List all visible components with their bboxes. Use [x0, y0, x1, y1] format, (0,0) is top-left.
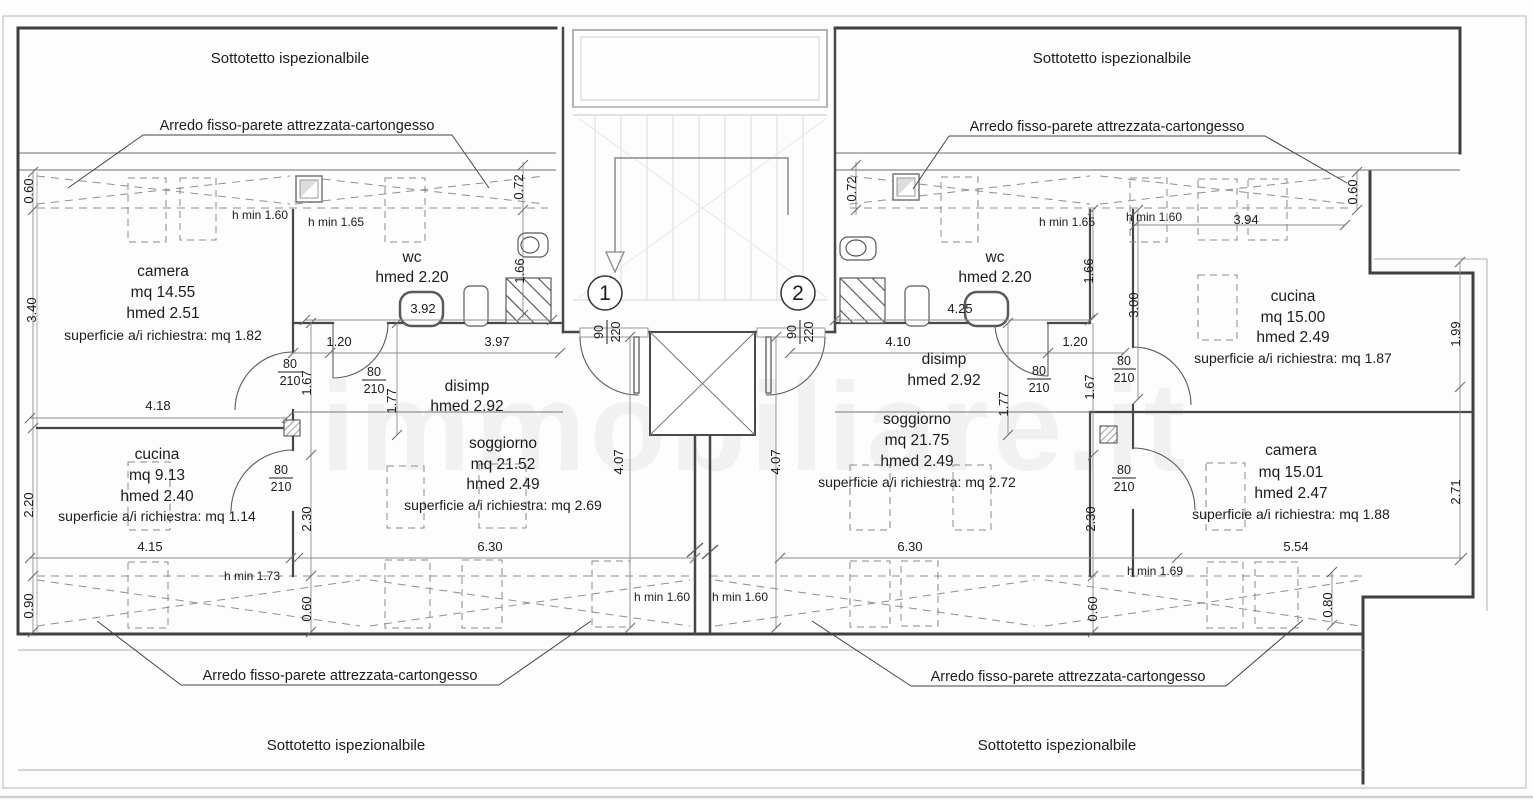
wardrobe-rect	[128, 178, 166, 242]
dim-label: 4.07	[611, 449, 626, 474]
arredo-label-bottom-left: Arredo fisso-parete attrezzata-cartonges…	[203, 668, 478, 684]
bathroom-fixtures	[400, 233, 1008, 326]
room-label-cucina-1: mq 9.13	[129, 467, 185, 484]
dim-label: h min 1.60	[1126, 210, 1182, 224]
dim-label: 4.18	[145, 398, 170, 413]
dim-label: 0.80	[1320, 592, 1335, 617]
door-size-label: 80210	[278, 357, 302, 388]
door-size-top: 90	[592, 325, 606, 339]
room-label-cucina-1: superficie a/i richiestra: mq 1.14	[58, 508, 256, 524]
floor-plan-page: immobiliare.it	[0, 0, 1533, 801]
dim-label: h min 1.65	[1039, 215, 1095, 229]
unit-1-badge: 1	[588, 276, 622, 310]
wardrobe-rect	[180, 178, 216, 240]
dim-label: 1.99	[1448, 321, 1463, 346]
dim-label: 1.20	[326, 334, 351, 349]
beam-lines	[18, 107, 1460, 170]
room-label-wc-1: wc	[402, 249, 422, 266]
dim-label: 0.60	[299, 596, 314, 621]
room-label-wc-1: hmed 2.20	[375, 269, 449, 286]
room-label-camera-2: hmed 2.47	[1254, 485, 1327, 502]
dim-label: 0.72	[844, 176, 859, 201]
dim-label: 1.77	[384, 388, 399, 413]
dim-label: h min 1.60	[634, 590, 690, 604]
door-size-bottom: 210	[364, 382, 385, 396]
staircase	[573, 30, 827, 300]
room-label-camera-1: hmed 2.51	[126, 305, 199, 322]
room-label-wc-2: wc	[985, 249, 1005, 266]
room-label-soggiorno-2: mq 21.75	[885, 432, 950, 449]
door-size-bottom: 210	[1114, 480, 1135, 494]
shower-icon	[840, 278, 885, 323]
room-label-cucina-1: hmed 2.40	[120, 488, 194, 505]
toilet-bowl-icon	[521, 237, 539, 253]
wardrobe-rect	[1198, 275, 1237, 340]
dim-label: 4.25	[947, 301, 972, 316]
shower-icon	[506, 278, 551, 323]
unit-2-number: 2	[792, 282, 804, 305]
wardrobe-rect	[1198, 179, 1237, 240]
room-label-camera-1: superficie a/i richiestra: mq 1.82	[64, 327, 262, 343]
dim-label: 3.00	[1126, 292, 1141, 317]
wardrobe-rect	[850, 561, 890, 627]
unit-2-badge: 2	[781, 276, 815, 310]
dim-label: 2.30	[1083, 506, 1098, 531]
unit-1-number: 1	[599, 282, 611, 305]
room-label-disimp-1: disimp	[445, 378, 490, 395]
wardrobe-rect	[385, 178, 425, 242]
sottotetto-label-bottom-left: Sottotetto ispezionalbile	[267, 737, 425, 754]
dim-label: 5.54	[1283, 539, 1308, 554]
door-size-label: 90220	[785, 320, 816, 344]
room-label-cucina-2: superficie a/i richiestra: mq 1.87	[1194, 350, 1392, 366]
dim-label: 1.77	[996, 391, 1011, 416]
wardrobe-rect	[592, 561, 630, 627]
room-label-camera-2: mq 15.01	[1259, 464, 1324, 481]
room-label-camera-2: superficie a/i richiestra: mq 1.88	[1192, 506, 1390, 522]
door-size-top: 80	[283, 357, 297, 371]
wardrobe-rect	[385, 560, 430, 628]
wall-break-icon	[687, 543, 718, 559]
room-label-disimp-2: disimp	[922, 351, 967, 368]
door-size-bottom: 220	[609, 322, 623, 343]
dim-label: h min 1.65	[308, 215, 364, 229]
room-label-cucina-1: cucina	[135, 446, 180, 463]
room-label-cucina-2: cucina	[1271, 288, 1316, 305]
dim-label: 0.60	[21, 178, 36, 203]
door-size-top: 80	[367, 365, 381, 379]
dim-label: 4.10	[885, 334, 910, 349]
dim-label: 2.20	[21, 492, 36, 517]
room-label-cucina-2: hmed 2.49	[1256, 329, 1329, 346]
dim-label: h min 1.69	[1127, 564, 1183, 578]
dim-label: 2.30	[299, 506, 314, 531]
room-label-wc-2: hmed 2.20	[958, 269, 1032, 286]
room-label-cucina-2: mq 15.00	[1261, 309, 1326, 326]
dim-label: 4.07	[768, 449, 783, 474]
room-label-camera-1: mq 14.55	[131, 284, 196, 301]
sottotetto-label-bottom-right: Sottotetto ispezionalbile	[978, 737, 1136, 754]
wardrobe-rect	[128, 562, 168, 628]
floor-plan-svg: immobiliare.it	[0, 0, 1533, 801]
room-label-soggiorno-1: mq 21.52	[471, 456, 536, 473]
flue-icon	[893, 174, 919, 200]
door-size-bottom: 210	[280, 374, 301, 388]
door-size-bottom: 210	[1029, 381, 1050, 395]
room-label-soggiorno-2: soggiorno	[883, 411, 951, 428]
wardrobe-rect	[901, 561, 938, 626]
dim-label: 0.90	[21, 593, 36, 618]
room-label-soggiorno-2: hmed 2.49	[880, 453, 953, 470]
wardrobe-rect	[1207, 562, 1243, 628]
room-label-camera-2: camera	[1265, 442, 1317, 459]
room-label-soggiorno-2: superficie a/i richiestra: mq 2.72	[818, 474, 1016, 490]
sottotetto-label-top-right: Sottotetto ispezionalbile	[1033, 50, 1191, 67]
arredo-label-top-right: Arredo fisso-parete attrezzata-cartonges…	[970, 119, 1245, 135]
dim-label: 0.60	[1085, 596, 1100, 621]
dim-label: h min 1.60	[232, 208, 288, 222]
dim-label: 4.15	[137, 539, 162, 554]
dim-label: 2.71	[1448, 479, 1463, 504]
dim-label: h min 1.73	[224, 569, 280, 583]
door-size-top: 80	[1117, 463, 1131, 477]
sottotetto-label-top-left: Sottotetto ispezionalbile	[211, 50, 369, 67]
dim-label: 1.66	[1081, 258, 1096, 283]
wardrobe-rect	[1248, 179, 1287, 240]
door-size-top: 80	[1032, 364, 1046, 378]
room-label-camera-1: camera	[137, 263, 189, 280]
door-size-label: 90220	[592, 320, 623, 344]
dim-label: 3.97	[484, 334, 509, 349]
dim-label: 6.30	[897, 539, 922, 554]
dim-label: 3.40	[24, 297, 39, 322]
room-label-disimp-2: hmed 2.92	[907, 372, 980, 389]
dim-label: 6.30	[477, 539, 502, 554]
dim-label: 1.67	[299, 370, 314, 395]
dim-label: 1.66	[512, 258, 527, 283]
dim-label: 1.67	[1082, 374, 1097, 399]
room-label-soggiorno-1: superficie a/i richiestra: mq 2.69	[404, 497, 602, 513]
room-label-soggiorno-1: hmed 2.49	[466, 476, 539, 493]
dim-label: 1.20	[1062, 334, 1087, 349]
door-size-top: 90	[785, 325, 799, 339]
door-size-bottom: 210	[271, 480, 292, 494]
flue-icon	[296, 176, 322, 202]
stair-guide-line	[615, 158, 788, 252]
wardrobe-rect	[1255, 562, 1298, 628]
dim-label: 0.60	[1345, 179, 1360, 204]
arredo-label-top-left: Arredo fisso-parete attrezzata-cartonges…	[160, 118, 435, 134]
door-size-top: 80	[274, 463, 288, 477]
dim-label: 3.92	[410, 301, 435, 316]
toilet-bowl-icon	[846, 240, 866, 256]
arredo-label-bottom-right: Arredo fisso-parete attrezzata-cartonges…	[931, 669, 1206, 685]
wardrobe-rect	[941, 177, 978, 242]
door-size-label: 80210	[269, 463, 293, 494]
dim-label: 3.94	[1233, 212, 1258, 227]
room-label-disimp-1: hmed 2.92	[430, 398, 503, 415]
door-size-bottom: 210	[1114, 371, 1135, 385]
dim-label: h min 1.60	[712, 590, 768, 604]
door-size-bottom: 220	[802, 322, 816, 343]
room-label-soggiorno-1: soggiorno	[469, 435, 537, 452]
door-size-top: 80	[1117, 354, 1131, 368]
dim-label: 0.72	[511, 174, 526, 199]
